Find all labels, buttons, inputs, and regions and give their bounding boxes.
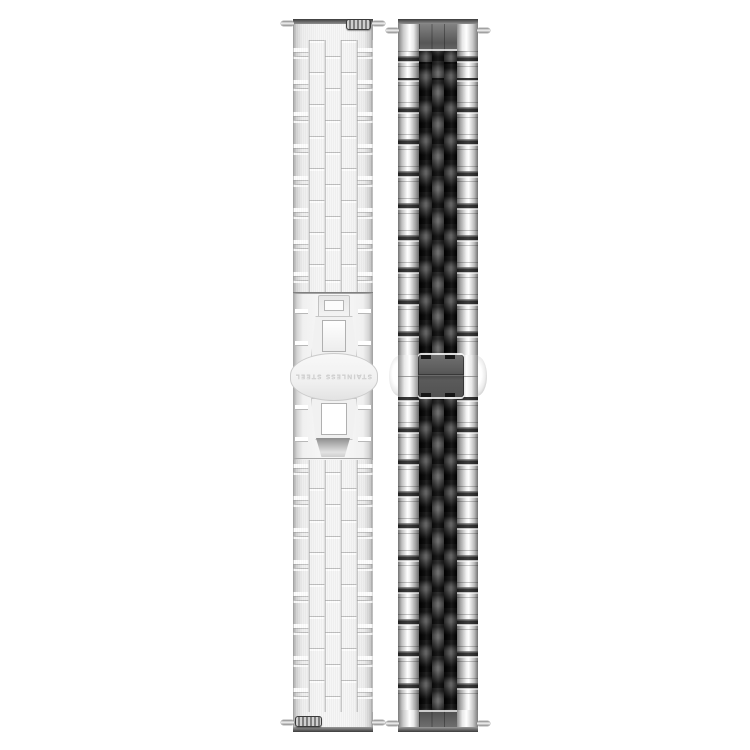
spring-bar-pin [281, 720, 294, 725]
spring-bar-pin [372, 720, 385, 725]
spring-bar-pin [477, 28, 490, 33]
end-link [398, 710, 478, 727]
clasp-fold-tip [316, 438, 350, 457]
spring-bar-pin [386, 28, 399, 33]
link-notch [418, 355, 464, 359]
quick-release-slider [346, 19, 371, 30]
link-notch [418, 393, 464, 397]
spring-bar-pin [477, 721, 490, 726]
quick-release-slider [295, 716, 322, 727]
clasp-front-plate [418, 355, 464, 397]
end-link-center [419, 710, 457, 727]
clasp-upper-arm [318, 295, 350, 319]
spring-bar-pin [372, 21, 385, 26]
clasp-window [324, 300, 344, 311]
clasp-window [322, 320, 346, 352]
end-link-outer [457, 24, 478, 51]
clasp-lower-frame [311, 398, 357, 440]
clasp-engraving: STAINLESS STEEL [295, 373, 372, 381]
clasp-window [321, 403, 347, 435]
spring-bar-pin [386, 721, 399, 726]
end-link-center [419, 24, 457, 51]
clasp-cover-plate: STAINLESS STEEL [290, 353, 378, 401]
spring-bar-bottom [398, 727, 478, 732]
spring-bar-bottom [293, 727, 373, 732]
spring-bar-top [398, 19, 478, 24]
clasp-upper-frame [311, 316, 357, 357]
clasp-side-link [398, 355, 419, 397]
end-link-outer [398, 24, 419, 51]
end-link-outer [457, 710, 478, 727]
silver-band: STAINLESS STEEL [293, 19, 373, 732]
end-link [398, 24, 478, 51]
silver-black-band [398, 19, 478, 732]
product-photo-watch-bands: STAINLESS STEEL [0, 0, 750, 750]
end-link-outer [398, 710, 419, 727]
spring-bar-pin [281, 21, 294, 26]
